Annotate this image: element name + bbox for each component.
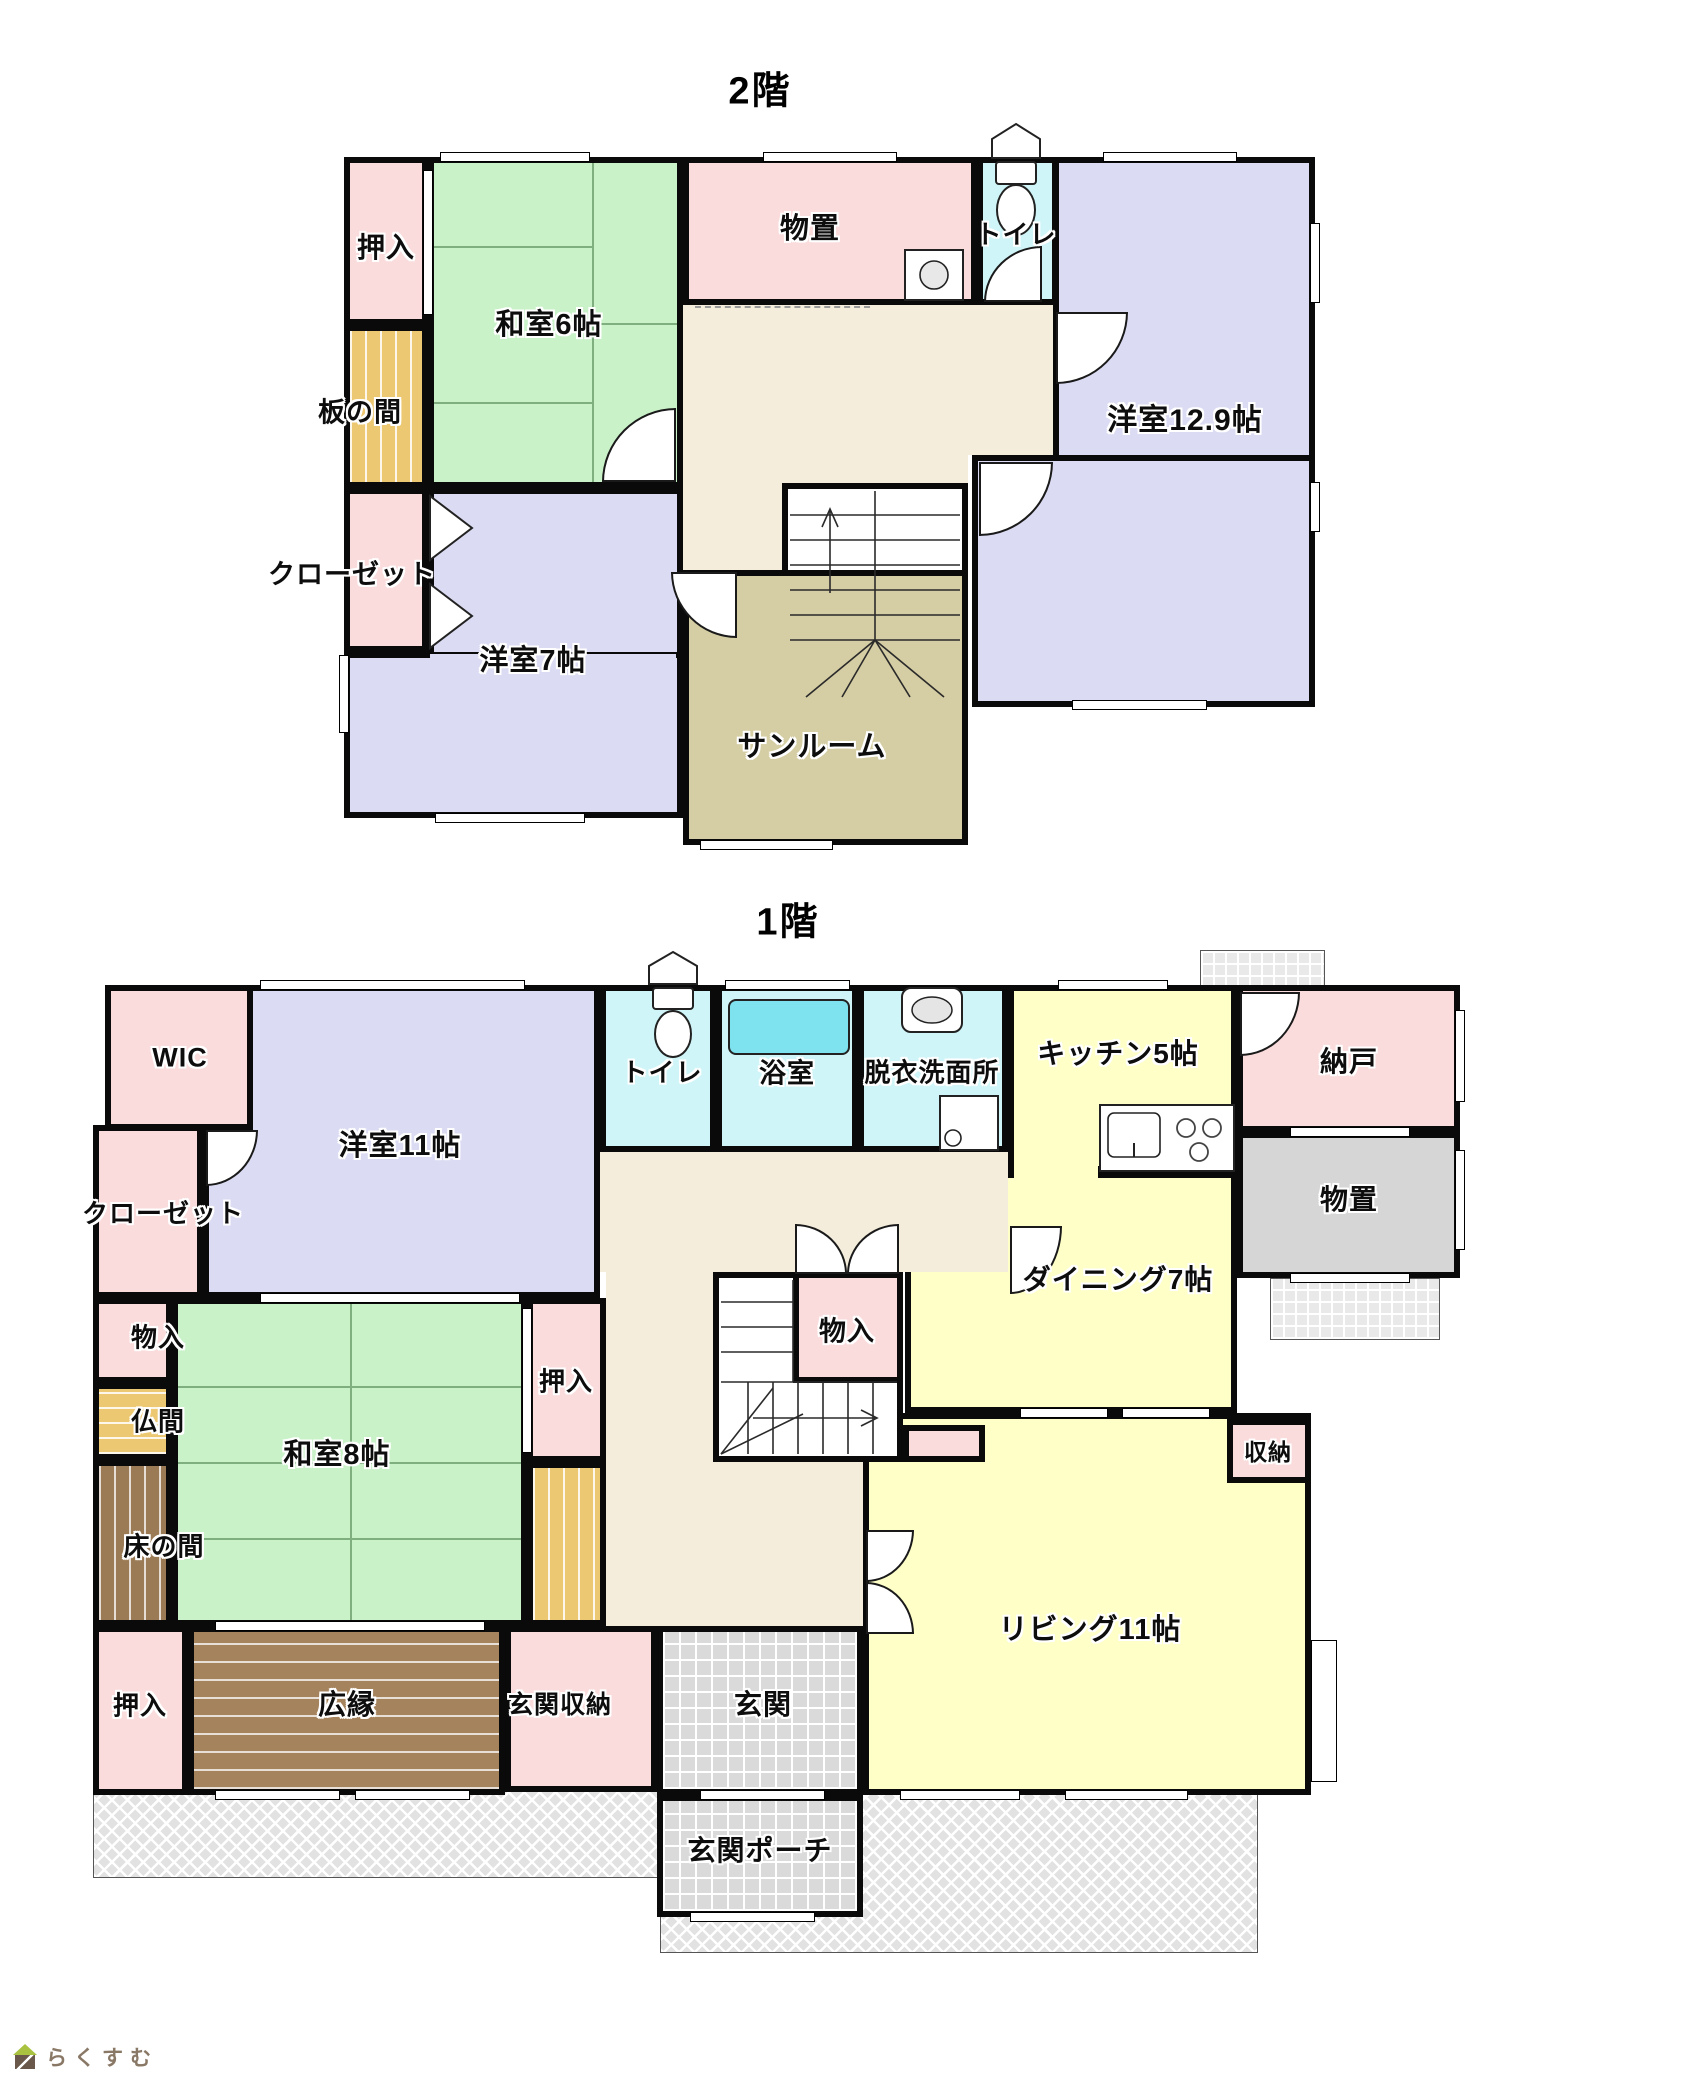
window	[900, 1790, 1020, 1800]
window	[1455, 1150, 1465, 1250]
logo-text: らくすむ	[46, 2042, 158, 2072]
room-label-genkan: 玄関	[734, 1683, 792, 1723]
window	[1310, 482, 1320, 532]
stairs-down-icon	[713, 1272, 903, 1462]
room-label-shuno: 収納	[1244, 1433, 1292, 1467]
window	[215, 1790, 340, 1800]
window	[1455, 1010, 1465, 1102]
room-label-living: リビング11帖	[999, 1606, 1182, 1648]
window	[339, 655, 349, 733]
room-label-washitsu8: 和室8帖	[283, 1431, 390, 1473]
room-label-bath: 浴室	[759, 1052, 815, 1091]
window	[423, 170, 433, 315]
stairs-up-icon	[782, 483, 968, 705]
window	[700, 840, 833, 850]
tatami-line	[434, 246, 592, 248]
site-logo: らくすむ	[12, 2042, 158, 2072]
window	[763, 152, 897, 162]
window	[1311, 1640, 1337, 1782]
tatami-line	[178, 1386, 521, 1388]
room-label-nando: 納戸	[1320, 1040, 1378, 1080]
window	[1103, 152, 1237, 162]
window	[1058, 980, 1168, 990]
room-label-washitsu6: 和室6帖	[495, 301, 602, 343]
room-label-monooki: 物置	[1320, 1178, 1378, 1218]
window	[690, 1912, 815, 1922]
room-label-monoire: 物入	[819, 1310, 875, 1349]
kitchen-counter-icon	[1098, 1103, 1236, 1173]
room-label-butsuma: 仏間	[131, 1402, 185, 1439]
tatami-line	[178, 1538, 521, 1540]
room-label-sunroom: サンルーム	[737, 723, 886, 765]
room-label-toilet: トイレ	[975, 215, 1056, 252]
room-label-hiroen: 広縁	[318, 1683, 376, 1723]
room-label-tokonoma: 床の間	[123, 1527, 204, 1564]
window	[215, 1621, 485, 1631]
tatami-line	[434, 402, 592, 404]
window	[700, 1790, 825, 1800]
room-label-yoshitsu129: 洋室12.9帖	[1107, 395, 1262, 439]
room-label-monoire_left: 物入	[131, 1318, 185, 1355]
window	[1122, 1408, 1210, 1418]
window	[1310, 223, 1320, 303]
room-label-kitchen: キッチン5帖	[1037, 1032, 1199, 1072]
room-label-oshiire_bottom: 押入	[113, 1686, 167, 1723]
label-layer: 2階 1階 押入和室6帖板の間物置トイレ洋室12.9帖クローゼット洋室7帖サンル…	[0, 0, 1702, 2089]
window	[1290, 1127, 1410, 1137]
window	[260, 1293, 520, 1303]
tatami-line	[592, 323, 677, 325]
floor1-title: 1階	[756, 891, 819, 946]
dashed-opening	[695, 306, 870, 308]
house-icon	[12, 2044, 38, 2070]
window	[260, 980, 525, 990]
room-label-closet: クローゼット	[268, 553, 436, 592]
room-label-dining: ダイニング7帖	[1023, 1258, 1214, 1298]
room-label-porch: 玄関ポーチ	[687, 1829, 832, 1869]
floor2-title: 2階	[728, 60, 791, 115]
window	[355, 1790, 470, 1800]
room-label-yoshitsu11: 洋室11帖	[339, 1122, 462, 1164]
window	[1020, 1408, 1108, 1418]
window	[725, 980, 850, 990]
bathtub-icon	[727, 998, 851, 1056]
window	[1290, 1273, 1410, 1283]
room-label-oshiire: 押入	[357, 226, 415, 266]
room-label-toilet: トイレ	[621, 1053, 702, 1090]
window	[440, 152, 590, 162]
room-label-yoshitsu7: 洋室7帖	[479, 637, 586, 679]
room-label-oshiire_right: 押入	[539, 1362, 593, 1399]
window	[1065, 1790, 1188, 1800]
room-label-datsui: 脱衣洗面所	[864, 1053, 999, 1090]
room-label-genkan_shuno: 玄関収納	[508, 1685, 612, 1721]
sink-icon	[900, 986, 964, 1034]
room-label-wic: WIC	[152, 1043, 207, 1074]
room-label-itanoma: 板の間	[318, 391, 402, 430]
window	[435, 813, 585, 823]
room-label-monooki: 物置	[780, 205, 840, 247]
toilet-icon-1f	[645, 950, 701, 1062]
washing-machine-icon	[938, 1094, 1000, 1152]
window	[522, 1308, 532, 1453]
window	[1072, 700, 1207, 710]
washbasin-icon-2f	[903, 248, 965, 304]
floor-plan-canvas: 2階 1階 押入和室6帖板の間物置トイレ洋室12.9帖クローゼット洋室7帖サンル…	[0, 0, 1702, 2089]
room-label-closet: クローゼット	[82, 1194, 244, 1231]
